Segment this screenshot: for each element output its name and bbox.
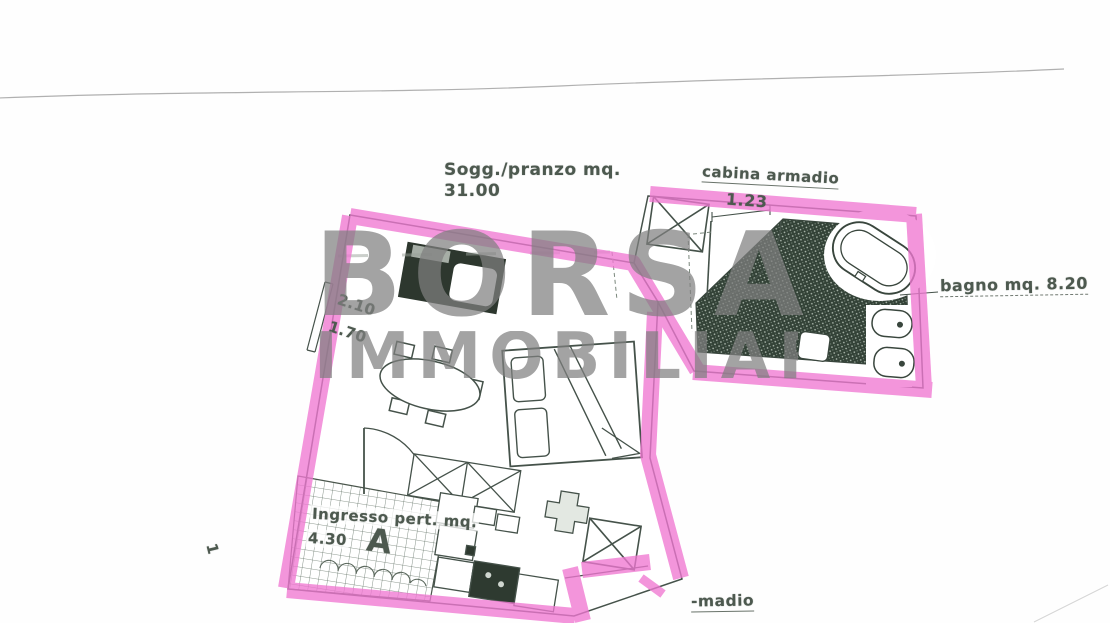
section-letter: A <box>364 520 394 561</box>
bidet <box>873 346 915 378</box>
living-room-area-value: 31.00 <box>444 181 500 201</box>
entrance-area-value: 4.30 <box>306 529 350 549</box>
pillow <box>514 408 549 458</box>
page-crease-line <box>1034 585 1108 622</box>
scanned-floor-plan-page: Sogg./pranzo mq. 31.00 cabina armadio 1.… <box>0 0 1110 623</box>
floor-plan-canvas <box>0 0 1110 623</box>
shower-drain-square <box>797 331 830 362</box>
truncated-wardrobe-label: -madio <box>691 591 754 612</box>
bed <box>502 342 642 467</box>
living-room-label: Sogg./pranzo mq. <box>444 160 621 180</box>
wall-annex-right <box>914 214 924 388</box>
scan-artifact-line <box>0 69 1064 98</box>
bathroom-label: bagno mq. 8.20 <box>940 274 1088 298</box>
sink <box>871 308 913 338</box>
pillow <box>511 356 546 402</box>
sink-unit <box>469 561 520 604</box>
closet-width-dimension: 1.23 <box>725 190 768 212</box>
